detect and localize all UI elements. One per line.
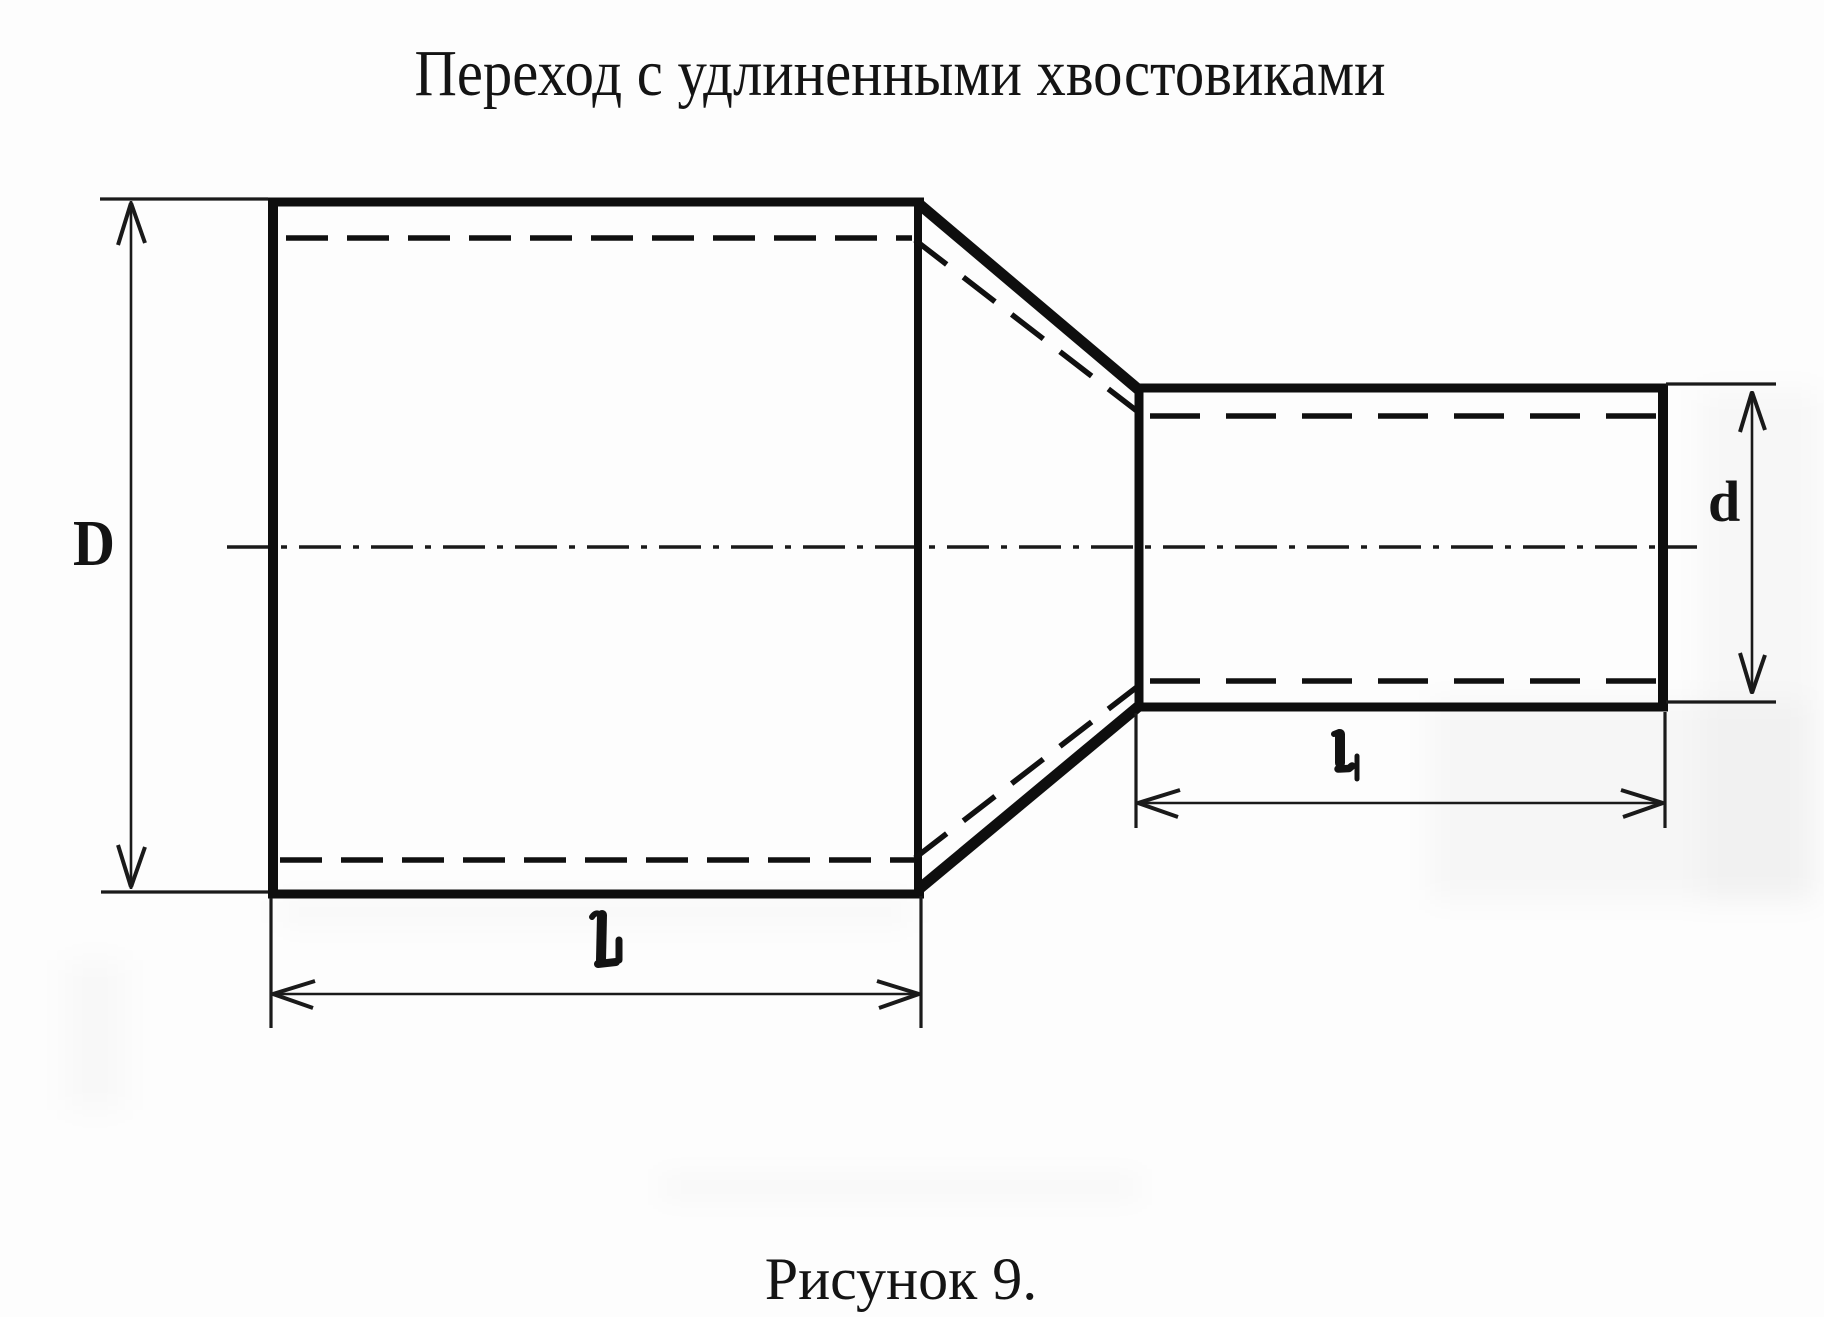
- svg-text:d: d: [1708, 469, 1740, 534]
- svg-text:Переход с удлиненными хвостови: Переход с удлиненными хвостовиками: [415, 37, 1386, 110]
- svg-text:Рисунок 9.: Рисунок 9.: [765, 1246, 1038, 1312]
- svg-text:D: D: [73, 508, 115, 580]
